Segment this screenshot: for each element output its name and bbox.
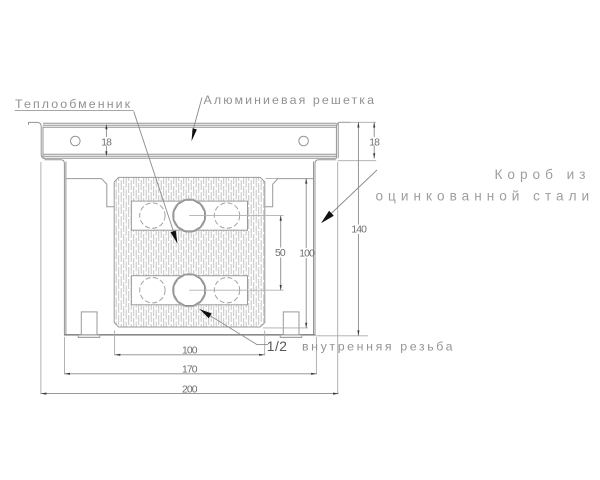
svg-text:Короб из: Короб из	[495, 167, 591, 182]
svg-text:1/2: 1/2	[267, 339, 288, 354]
svg-text:внутренняя резьба: внутренняя резьба	[302, 339, 455, 353]
svg-text:200: 200	[182, 385, 198, 396]
svg-text:18: 18	[101, 137, 112, 148]
svg-text:18: 18	[369, 137, 380, 148]
svg-text:170: 170	[182, 365, 198, 376]
svg-text:100: 100	[299, 248, 315, 259]
svg-text:100: 100	[182, 346, 198, 357]
svg-text:50: 50	[275, 248, 286, 259]
svg-text:140: 140	[351, 225, 367, 236]
svg-text:Алюминиевая решетка: Алюминиевая решетка	[204, 93, 377, 107]
svg-text:оцинкованной стали: оцинкованной стали	[376, 188, 595, 203]
svg-text:Теплообменник: Теплообменник	[15, 97, 132, 111]
